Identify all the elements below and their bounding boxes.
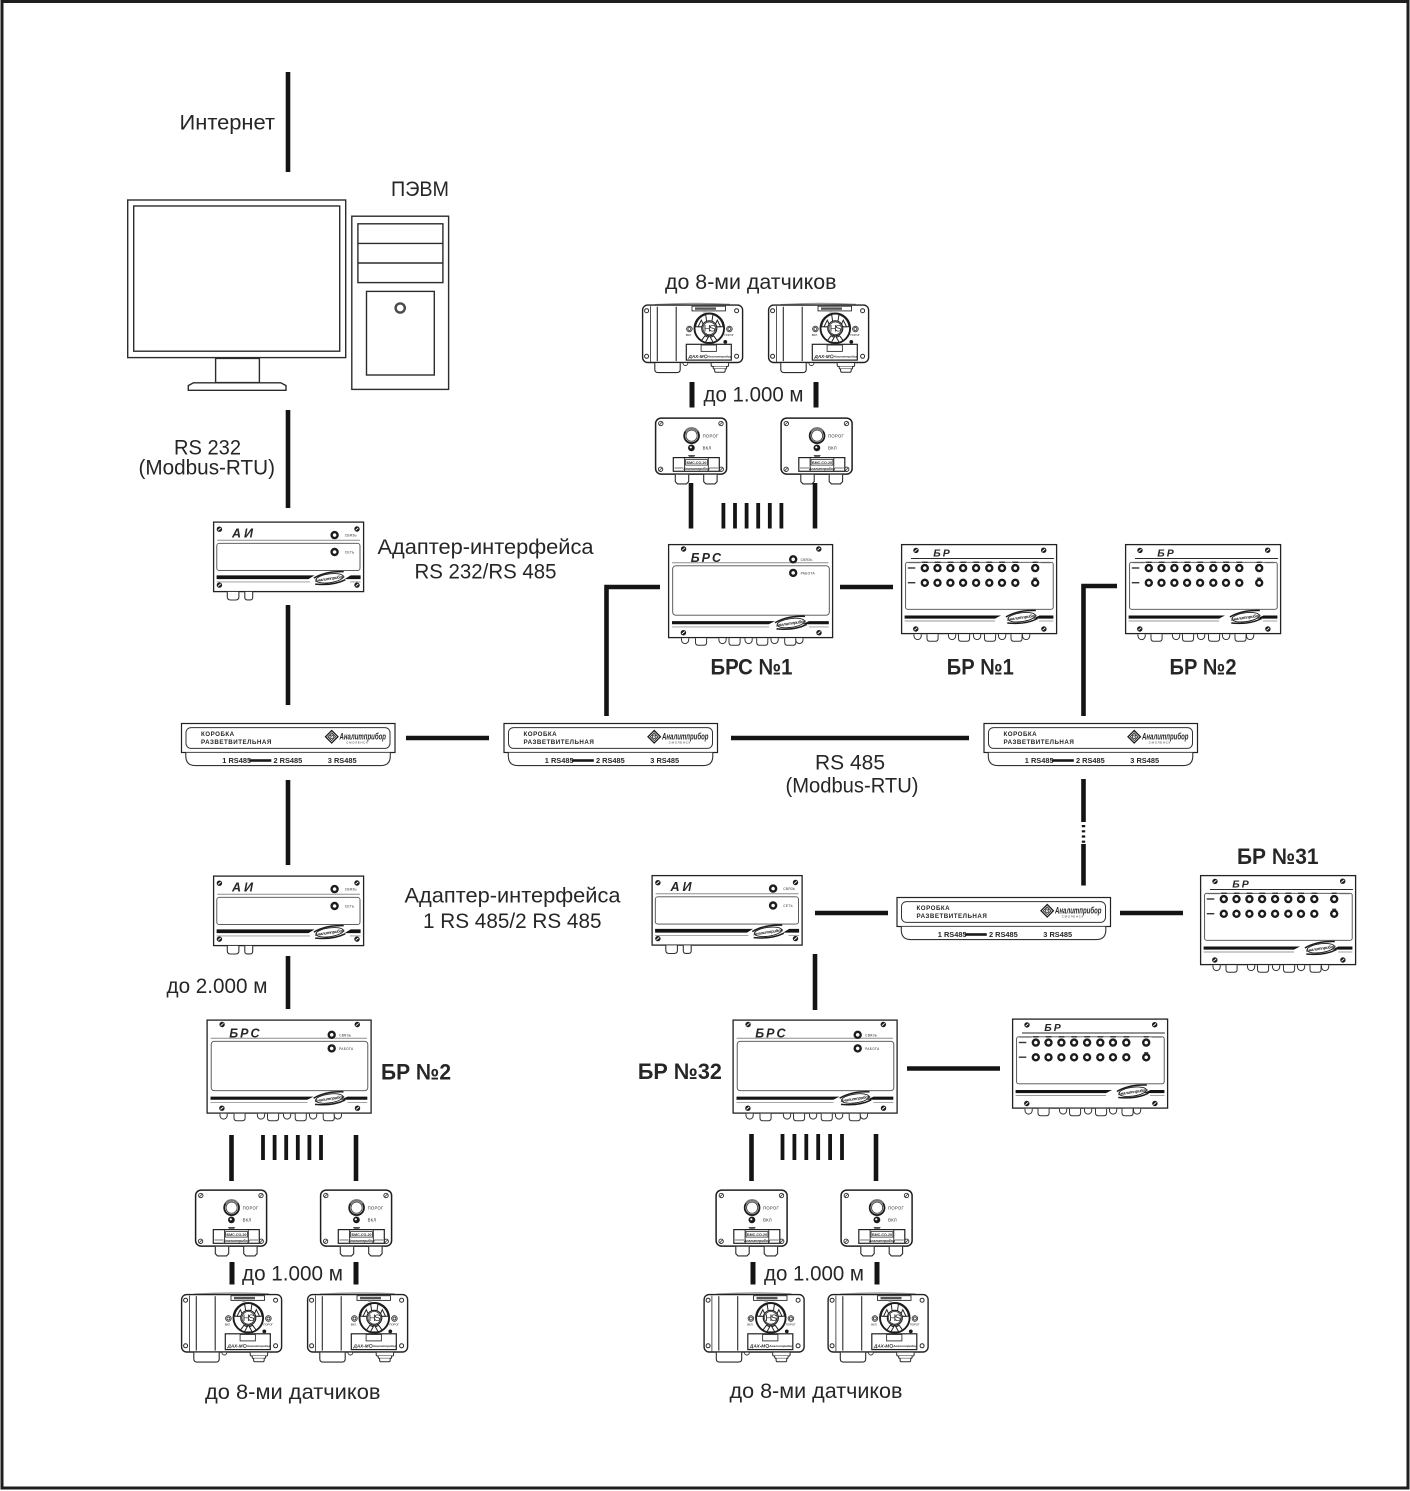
svg-text:1 RS 485/2 RS 485: 1 RS 485/2 RS 485 [423, 910, 602, 933]
svg-text:RS 485: RS 485 [815, 752, 885, 775]
svg-text:Адаптер-интерфейса: Адаптер-интерфейса [405, 885, 621, 908]
svg-text:Адаптер-интерфейса: Адаптер-интерфейса [378, 536, 594, 559]
svg-text:до 1.000 м: до 1.000 м [704, 384, 804, 407]
svg-text:(Modbus-RTU): (Modbus-RTU) [786, 775, 919, 798]
svg-text:Интернет: Интернет [180, 112, 276, 135]
svg-text:БР №31: БР №31 [1237, 844, 1319, 869]
svg-text:БР №1: БР №1 [947, 655, 1014, 680]
svg-text:до 1.000 м: до 1.000 м [764, 1263, 864, 1286]
svg-text:БРС №1: БРС №1 [711, 655, 793, 680]
svg-text:БР №2: БР №2 [1170, 655, 1237, 680]
svg-text:до 2.000 м: до 2.000 м [167, 975, 268, 998]
svg-text:до 1.000 м: до 1.000 м [242, 1263, 343, 1286]
svg-text:БР №32: БР №32 [638, 1059, 722, 1084]
svg-text:(Modbus-RTU): (Modbus-RTU) [139, 457, 276, 480]
svg-text:до 8-ми датчиков: до 8-ми датчиков [205, 1381, 381, 1404]
svg-text:до 8-ми датчиков: до 8-ми датчиков [665, 271, 837, 294]
svg-text:до 8-ми датчиков: до 8-ми датчиков [730, 1380, 903, 1403]
svg-text:БР №2: БР №2 [381, 1060, 451, 1085]
svg-text:RS 232/RS 485: RS 232/RS 485 [415, 561, 557, 584]
svg-text:ПЭВМ: ПЭВМ [391, 178, 449, 201]
